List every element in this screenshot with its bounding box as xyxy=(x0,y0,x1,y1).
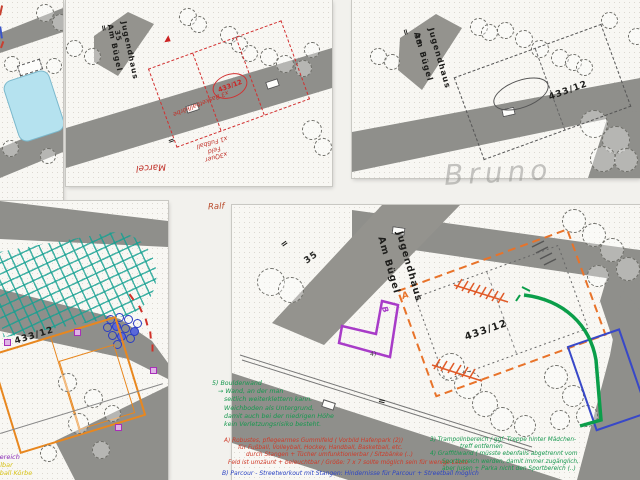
margin-scribble-red xyxy=(0,5,9,16)
scanned-siteplan-collage: Jugendhaus Am Bügel 35 = = 433/12 x3 Bas… xyxy=(0,0,640,480)
plan-photo-bottom-left: 433/12 llinbereich l teilbar sketball Kö… xyxy=(0,201,168,480)
note-line: 5) Boulderwand xyxy=(212,380,334,388)
tree-icon xyxy=(84,48,101,65)
tree-icon xyxy=(304,42,320,58)
red-tick xyxy=(152,345,154,352)
note-line: seitlich weiterklettern kann. xyxy=(212,396,334,404)
note-line: 4) Graffitiwand ( müsste ebenfalls abget… xyxy=(430,451,579,458)
tree-icon xyxy=(92,441,110,459)
note-line: Sportbereich werden, damit immer zugängl… xyxy=(430,459,579,466)
hw-author-ralf: Ralf xyxy=(208,202,225,213)
zone-b-number: 4) xyxy=(370,351,376,358)
note-green-boulderwand: 5) Boulderwand → Wand, an der man seitli… xyxy=(212,380,334,429)
note-yellow-2: sketball Körbe xyxy=(0,469,32,477)
tree-icon xyxy=(58,373,77,392)
note-line: aber Jusen + Parka nicht den Sportbereic… xyxy=(430,466,579,473)
note-yellow-1: l teilbar xyxy=(0,461,13,469)
tree-icon xyxy=(590,146,616,172)
note-green-trampolin-graffiti: 3) Trampolinbereich / ggf. Treppe hinter… xyxy=(430,437,579,473)
blue-dot xyxy=(126,334,135,343)
margin-scribble-blue xyxy=(0,26,9,39)
note-line: Weichboden als Untergrund, xyxy=(212,405,334,413)
hw-author-marcel: Marcel xyxy=(136,161,167,173)
purple-node xyxy=(4,339,11,346)
tree-icon xyxy=(314,138,332,156)
note-line: treff entfernen xyxy=(430,444,579,451)
pencil-name-bruno: Bruno xyxy=(443,153,553,192)
tree-icon xyxy=(497,22,514,39)
tree-icon xyxy=(52,14,63,31)
road-band xyxy=(0,0,63,60)
zone-a-orange-outline xyxy=(398,229,605,396)
blue-dot xyxy=(124,315,133,324)
tree-icon xyxy=(515,30,533,48)
tree-icon xyxy=(104,405,121,422)
red-tick xyxy=(149,331,152,338)
tree-icon xyxy=(481,24,498,41)
tree-icon xyxy=(384,54,400,70)
plan-photo-top-right: Jugendhaus Am Bügel 35 = 433/12 xyxy=(352,0,640,178)
blue-field-outline xyxy=(568,329,640,430)
tree-icon xyxy=(66,40,83,57)
red-tick xyxy=(145,318,149,325)
pool-area xyxy=(1,68,63,144)
tree-icon xyxy=(40,445,57,462)
crossed-out-scribble-fence xyxy=(432,359,482,381)
note-line: kein Verletzungsrisiko besteht. xyxy=(212,421,334,429)
tree-icon xyxy=(2,140,19,157)
plan-photo-top-left-strip xyxy=(0,0,63,201)
tree-icon xyxy=(46,58,62,74)
purple-node xyxy=(150,367,157,374)
tree-icon xyxy=(614,148,638,172)
stairs-icon xyxy=(532,241,556,265)
note-line: 3) Trampolinbereich / ggf. Treppe hinter… xyxy=(430,437,579,444)
tree-icon xyxy=(68,413,89,434)
purple-node xyxy=(115,424,122,431)
tree-icon xyxy=(601,12,618,29)
purple-node xyxy=(74,329,81,336)
tree-icon xyxy=(40,148,56,164)
tree-icon xyxy=(190,16,207,33)
crossed-out-scribble-top xyxy=(454,279,508,303)
tree-icon xyxy=(302,120,322,140)
note-purple: llinbereich xyxy=(0,453,20,461)
plan-photo-top-middle: Jugendhaus Am Bügel 35 = = 433/12 x3 Bas… xyxy=(66,0,332,186)
tree-icon xyxy=(628,28,640,45)
note-line: damit auch bei der niedrigen Höhe xyxy=(212,413,334,421)
